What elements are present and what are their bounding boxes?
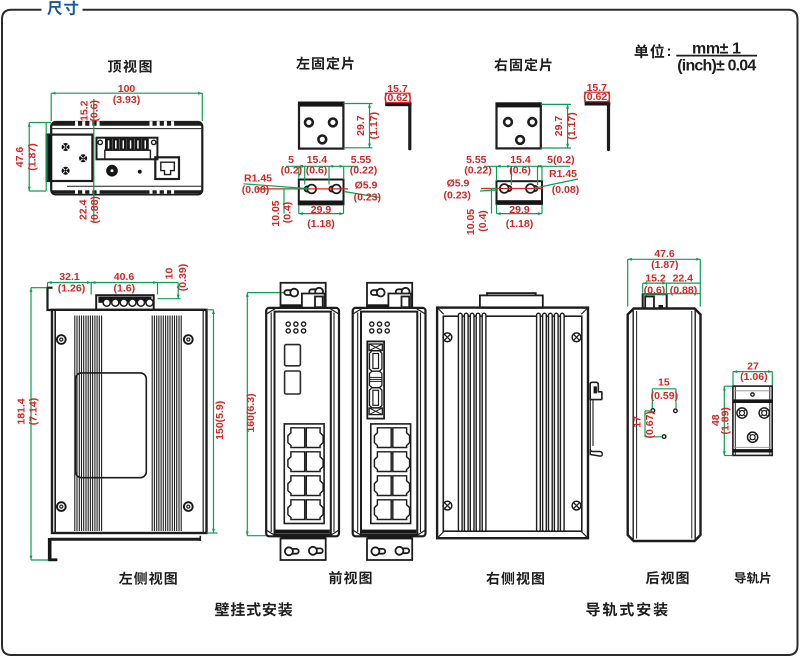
svg-text:22.4: 22.4 [78, 199, 90, 220]
svg-text:(1.18): (1.18) [506, 218, 533, 230]
svg-text:R1.45: R1.45 [549, 168, 577, 180]
svg-text:(1.17): (1.17) [566, 112, 578, 139]
svg-text:(1.6): (1.6) [114, 283, 136, 295]
svg-text:17: 17 [631, 416, 643, 428]
svg-text:(0.62): (0.62) [583, 91, 610, 103]
svg-text:(1.17): (1.17) [368, 112, 380, 139]
svg-text:(0.4): (0.4) [477, 210, 489, 232]
svg-text:40.6: 40.6 [114, 271, 135, 283]
svg-text:15: 15 [658, 377, 670, 389]
svg-text:(0.88): (0.88) [670, 284, 697, 296]
svg-text:(7.14): (7.14) [27, 398, 39, 425]
svg-text::: : [667, 43, 672, 60]
svg-text:(0.23): (0.23) [443, 190, 470, 202]
svg-text:(0.2): (0.2) [281, 165, 303, 177]
svg-text:29.9: 29.9 [311, 204, 332, 216]
svg-text:10.05: 10.05 [465, 209, 477, 235]
svg-text:(0.4): (0.4) [281, 202, 293, 224]
svg-text:29.9: 29.9 [509, 204, 530, 216]
svg-text:(1.26): (1.26) [58, 283, 85, 295]
svg-text:(3.93): (3.93) [113, 94, 140, 106]
svg-text:160(6.3): 160(6.3) [245, 393, 257, 432]
svg-text:150(5.9): 150(5.9) [214, 401, 226, 440]
svg-text:(0.62): (0.62) [384, 92, 411, 104]
svg-text:(1.18): (1.18) [307, 218, 334, 230]
svg-text:(0.39): (0.39) [177, 264, 189, 291]
svg-text:5(0.2): 5(0.2) [547, 154, 574, 166]
svg-text:181.4: 181.4 [16, 398, 28, 424]
svg-text:(0.6): (0.6) [89, 100, 101, 122]
svg-text:(0.67): (0.67) [644, 411, 656, 438]
svg-text:(1.89): (1.89) [720, 407, 732, 434]
svg-text:(1.06): (1.06) [740, 371, 767, 383]
svg-text:(0.6): (0.6) [306, 165, 328, 177]
svg-text:(0.6): (0.6) [509, 165, 531, 177]
svg-text:(0.08): (0.08) [242, 184, 269, 196]
svg-text:(0.08): (0.08) [552, 184, 579, 196]
svg-text:(0.88): (0.88) [89, 196, 101, 223]
svg-text:Ø5.9: Ø5.9 [355, 180, 378, 192]
svg-text:32.1: 32.1 [59, 271, 80, 283]
svg-text:(0.22): (0.22) [350, 165, 377, 177]
svg-text:(inch)± 0.04: (inch)± 0.04 [677, 57, 756, 74]
svg-text:29.7: 29.7 [355, 115, 367, 136]
svg-text:(0.22): (0.22) [464, 165, 491, 177]
svg-text:Ø5.9: Ø5.9 [447, 178, 470, 190]
svg-text:(1.87): (1.87) [651, 259, 678, 271]
svg-text:10: 10 [164, 268, 176, 280]
svg-text:47.6: 47.6 [654, 248, 675, 260]
svg-text:(0.59): (0.59) [651, 390, 678, 402]
svg-text:(0.23): (0.23) [354, 192, 381, 204]
svg-text:(1.87): (1.87) [26, 143, 38, 170]
svg-text:47.6: 47.6 [14, 147, 26, 168]
svg-text:10.05: 10.05 [270, 200, 282, 226]
svg-text:R1.45: R1.45 [244, 173, 272, 185]
svg-text:29.7: 29.7 [553, 116, 565, 137]
